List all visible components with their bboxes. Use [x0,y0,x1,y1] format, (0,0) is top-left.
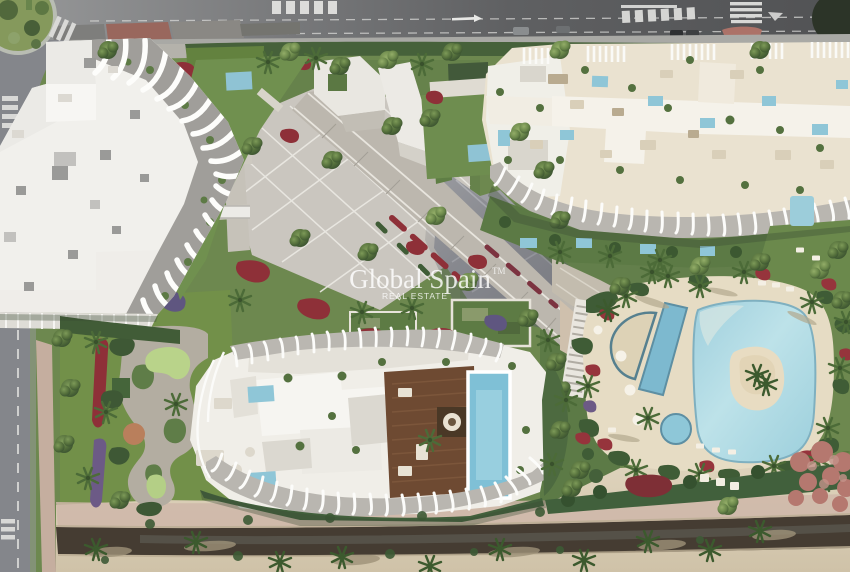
svg-text:REAL ESTATE: REAL ESTATE [382,291,448,301]
svg-text:Global Spain: Global Spain [349,264,491,294]
svg-text:TM: TM [492,266,506,276]
